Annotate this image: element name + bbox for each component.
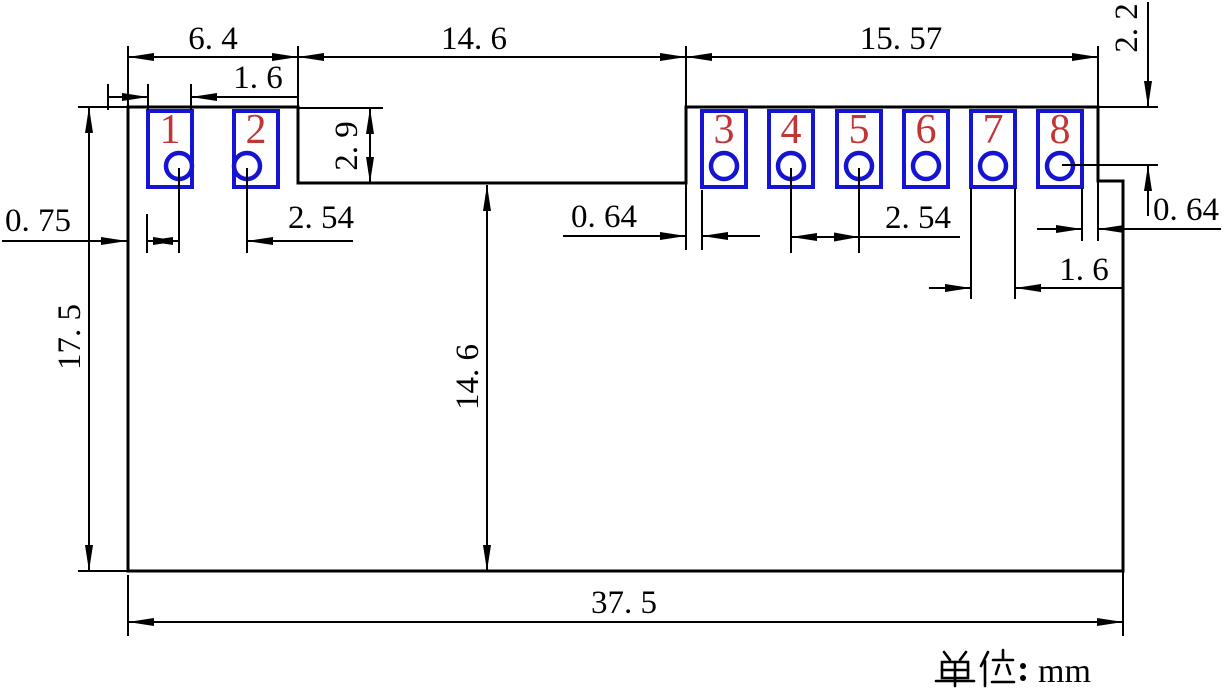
units-colon-dot (1020, 675, 1026, 681)
arrowhead (834, 233, 859, 242)
pad-numbers: 1 2 3 4 5 6 7 8 (160, 107, 1071, 153)
dim-label-37.5: 37. 5 (591, 585, 657, 621)
pad-number-2: 2 (246, 107, 267, 153)
units-colon-dot (1020, 663, 1026, 669)
dim-label-14.6-vertical: 14. 6 (450, 344, 486, 410)
dim-label-0.64-left: 0. 64 (571, 199, 637, 235)
hole-7 (980, 153, 1006, 179)
mechanical-drawing: 1 2 3 4 5 6 7 8 (0, 0, 1225, 692)
dim-label-2.54-right: 2. 54 (885, 200, 951, 236)
pad-number-8: 8 (1050, 107, 1071, 153)
pad-number-7: 7 (983, 107, 1004, 153)
dim-label-2.2: 2. 2 (1109, 3, 1145, 53)
units-note: mm (936, 650, 1091, 690)
pad-number-4: 4 (781, 107, 802, 153)
dim-label-0.75: 0. 75 (5, 203, 71, 239)
units-cjk-dan (936, 652, 974, 686)
drawing-canvas: 1 2 3 4 5 6 7 8 (0, 0, 1225, 692)
dim-label-14.6-top: 14. 6 (441, 21, 507, 57)
hole-6 (913, 153, 939, 179)
holes (166, 153, 1073, 179)
dim-label-1.6-left: 1. 6 (233, 60, 283, 96)
dim-label-2.54-left: 2. 54 (288, 200, 354, 236)
dim-label-15.57: 15. 57 (860, 21, 943, 57)
dimension-labels: 6. 4 1. 6 14. 6 15. 57 0. 75 2. 54 0. 64… (5, 3, 1219, 621)
pad-number-3: 3 (714, 107, 735, 153)
pad-number-6: 6 (916, 107, 937, 153)
dim-label-6.4: 6. 4 (188, 21, 238, 57)
units-mm-label: mm (1038, 653, 1091, 690)
dim-label-0.64-right: 0. 64 (1153, 192, 1219, 228)
units-cjk-wei (981, 650, 1014, 686)
dim-label-17.5: 17. 5 (52, 304, 88, 370)
pad-number-5: 5 (849, 107, 870, 153)
dim-label-1.6-right: 1. 6 (1059, 252, 1109, 288)
dimension-lines (2, 2, 1221, 622)
pad-number-1: 1 (160, 107, 181, 153)
dim-label-2.9: 2. 9 (329, 121, 365, 171)
pads (148, 111, 1082, 187)
hole-3 (711, 153, 737, 179)
